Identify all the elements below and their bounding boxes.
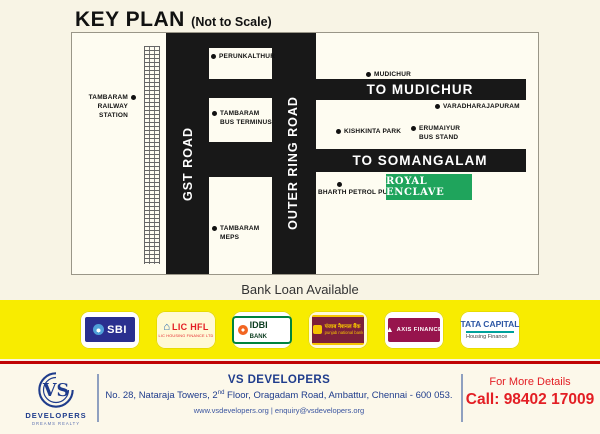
phone-number: Call: 98402 17009 — [462, 391, 598, 409]
bank-card-pnb: पंजाब नैशनल बैंक punjab national bank — [308, 311, 368, 349]
road-gst-label: GST ROAD — [178, 94, 198, 234]
location-dot-icon — [212, 111, 217, 116]
sbi-logo: SBI — [85, 317, 135, 342]
marker-bus-terminus: TAMBARAM BUS TERMINUS — [212, 110, 272, 128]
idbi-logo: IDBI BANK — [232, 316, 292, 344]
road-to-mudichur: TO MUDICHUR — [314, 79, 526, 100]
marker-perunkalthur-label: PERUNKALTHUR — [219, 53, 275, 62]
location-dot-icon — [435, 104, 440, 109]
site-royal-enclave: ROYAL ENCLAVE — [386, 174, 472, 200]
sbi-label: SBI — [107, 324, 127, 336]
sbi-circle-icon — [93, 324, 104, 335]
house-icon: ⌂ — [163, 322, 170, 333]
pnb-english-label: punjab national bank — [325, 330, 364, 335]
location-dot-icon — [411, 126, 416, 131]
location-dot-icon — [366, 72, 371, 77]
idbi-circle-icon — [238, 325, 248, 335]
location-dot-icon — [336, 129, 341, 134]
marker-meps: TAMBARAM MEPS — [212, 225, 259, 243]
bank-card-tata: TATA CAPITAL Housing Finance — [460, 311, 520, 349]
road-to-mudichur-label: TO MUDICHUR — [367, 82, 474, 97]
page-title: KEY PLAN (Not to Scale) — [75, 8, 272, 32]
logo-name: DEVELOPERS — [24, 411, 88, 420]
location-dot-icon — [131, 95, 136, 100]
marker-railway-station-label: TAMBARAM RAILWAY STATION — [74, 94, 128, 120]
key-plan-flyer: KEY PLAN (Not to Scale) TO MUDICHUR TO S… — [0, 0, 600, 434]
bank-card-lichfl: ⌂ LIC HFL LIC HOUSING FINANCE LTD — [156, 311, 216, 349]
marker-kishkinta-park: KISHKINTA PARK — [336, 128, 401, 137]
more-details-text: For More Details — [462, 376, 598, 388]
marker-varadharajapuram-label: VARADHARAJAPURAM — [443, 103, 520, 112]
road-to-somangalam: TO SOMANGALAM — [314, 149, 526, 172]
axis-label: AXIS FINANCE — [397, 327, 443, 333]
company-name: VS DEVELOPERS — [100, 374, 458, 386]
axis-logo: ▲ AXIS FINANCE — [388, 318, 440, 342]
bank-card-axis: ▲ AXIS FINANCE — [384, 311, 444, 349]
marker-mudichur: MUDICHUR — [366, 71, 411, 80]
marker-varadharajapuram: VARADHARAJAPURAM — [435, 103, 520, 112]
road-gst-text: GST ROAD — [181, 127, 195, 201]
svg-text:VS: VS — [42, 381, 69, 401]
lichfl-label: LIC HFL — [172, 322, 209, 332]
company-address: No. 28, Nataraja Towers, 2nd Floor, Orag… — [100, 390, 458, 401]
marker-mudichur-label: MUDICHUR — [374, 71, 411, 80]
idbi-label: IDBI — [250, 320, 268, 330]
pnb-hindi-label: पंजाब नैशनल बैंक — [325, 324, 364, 331]
tata-label: TATA CAPITAL — [460, 319, 519, 329]
pnb-icon — [313, 325, 322, 334]
tata-divider — [466, 331, 514, 333]
bank-card-idbi: IDBI BANK — [232, 311, 292, 349]
vs-logo-swirl: VS — [36, 370, 76, 410]
footer-call-block: For More Details Call: 98402 17009 — [462, 376, 598, 409]
footer: VS DEVELOPERS DREAMS REALTY VS DEVELOPER… — [0, 364, 600, 434]
tata-sublabel: Housing Finance — [466, 334, 507, 340]
marker-railway-station: TAMBARAM RAILWAY STATION — [74, 94, 136, 120]
bank-strip: SBI ⌂ LIC HFL LIC HOUSING FINANCE LTD ID… — [0, 300, 600, 359]
marker-kishkinta-park-label: KISHKINTA PARK — [344, 128, 401, 137]
company-logo: VS DEVELOPERS DREAMS REALTY — [24, 370, 88, 426]
marker-erumaiyur-label: ERUMAIYUR BUS STAND — [419, 125, 460, 143]
road-outer-ring-label: OUTER RING ROAD — [283, 78, 303, 248]
marker-meps-label: TAMBARAM MEPS — [220, 225, 259, 243]
bank-loan-text: Bank Loan Available — [0, 282, 600, 297]
marker-bus-terminus-label: TAMBARAM BUS TERMINUS — [220, 110, 272, 128]
road-outer-ring-text: OUTER RING ROAD — [286, 96, 300, 230]
road-to-somangalam-label: TO SOMANGALAM — [353, 153, 488, 168]
page-title-text: KEY PLAN — [75, 8, 185, 31]
logo-tagline: DREAMS REALTY — [24, 421, 88, 426]
bank-card-sbi: SBI — [80, 311, 140, 349]
footer-contact-block: VS DEVELOPERS No. 28, Nataraja Towers, 2… — [100, 374, 458, 415]
pnb-logo: पंजाब नैशनल बैंक punjab national bank — [312, 315, 364, 345]
location-dot-icon — [337, 182, 342, 187]
address-post: Floor, Oragadam Road, Ambattur, Chennai … — [224, 390, 452, 401]
marker-perunkalthur: PERUNKALTHUR — [211, 53, 275, 62]
idbi-label2: BANK — [250, 334, 267, 340]
footer-vertical-divider — [97, 374, 99, 422]
key-plan-map: TO MUDICHUR TO SOMANGALAM GST ROAD OUTER… — [71, 32, 539, 275]
website-email: www.vsdevelopers.org | enquiry@vsdevelop… — [100, 406, 458, 415]
axis-triangle-icon: ▲ — [386, 326, 394, 334]
railway-track — [144, 46, 160, 264]
lichfl-sublabel: LIC HOUSING FINANCE LTD — [159, 334, 214, 338]
marker-erumaiyur: ERUMAIYUR BUS STAND — [411, 125, 460, 143]
location-dot-icon — [212, 226, 217, 231]
site-royal-enclave-label: ROYAL ENCLAVE — [386, 176, 472, 198]
address-pre: No. 28, Nataraja Towers, 2 — [105, 390, 217, 401]
location-dot-icon — [211, 54, 216, 59]
page-title-suffix: (Not to Scale) — [191, 15, 272, 29]
